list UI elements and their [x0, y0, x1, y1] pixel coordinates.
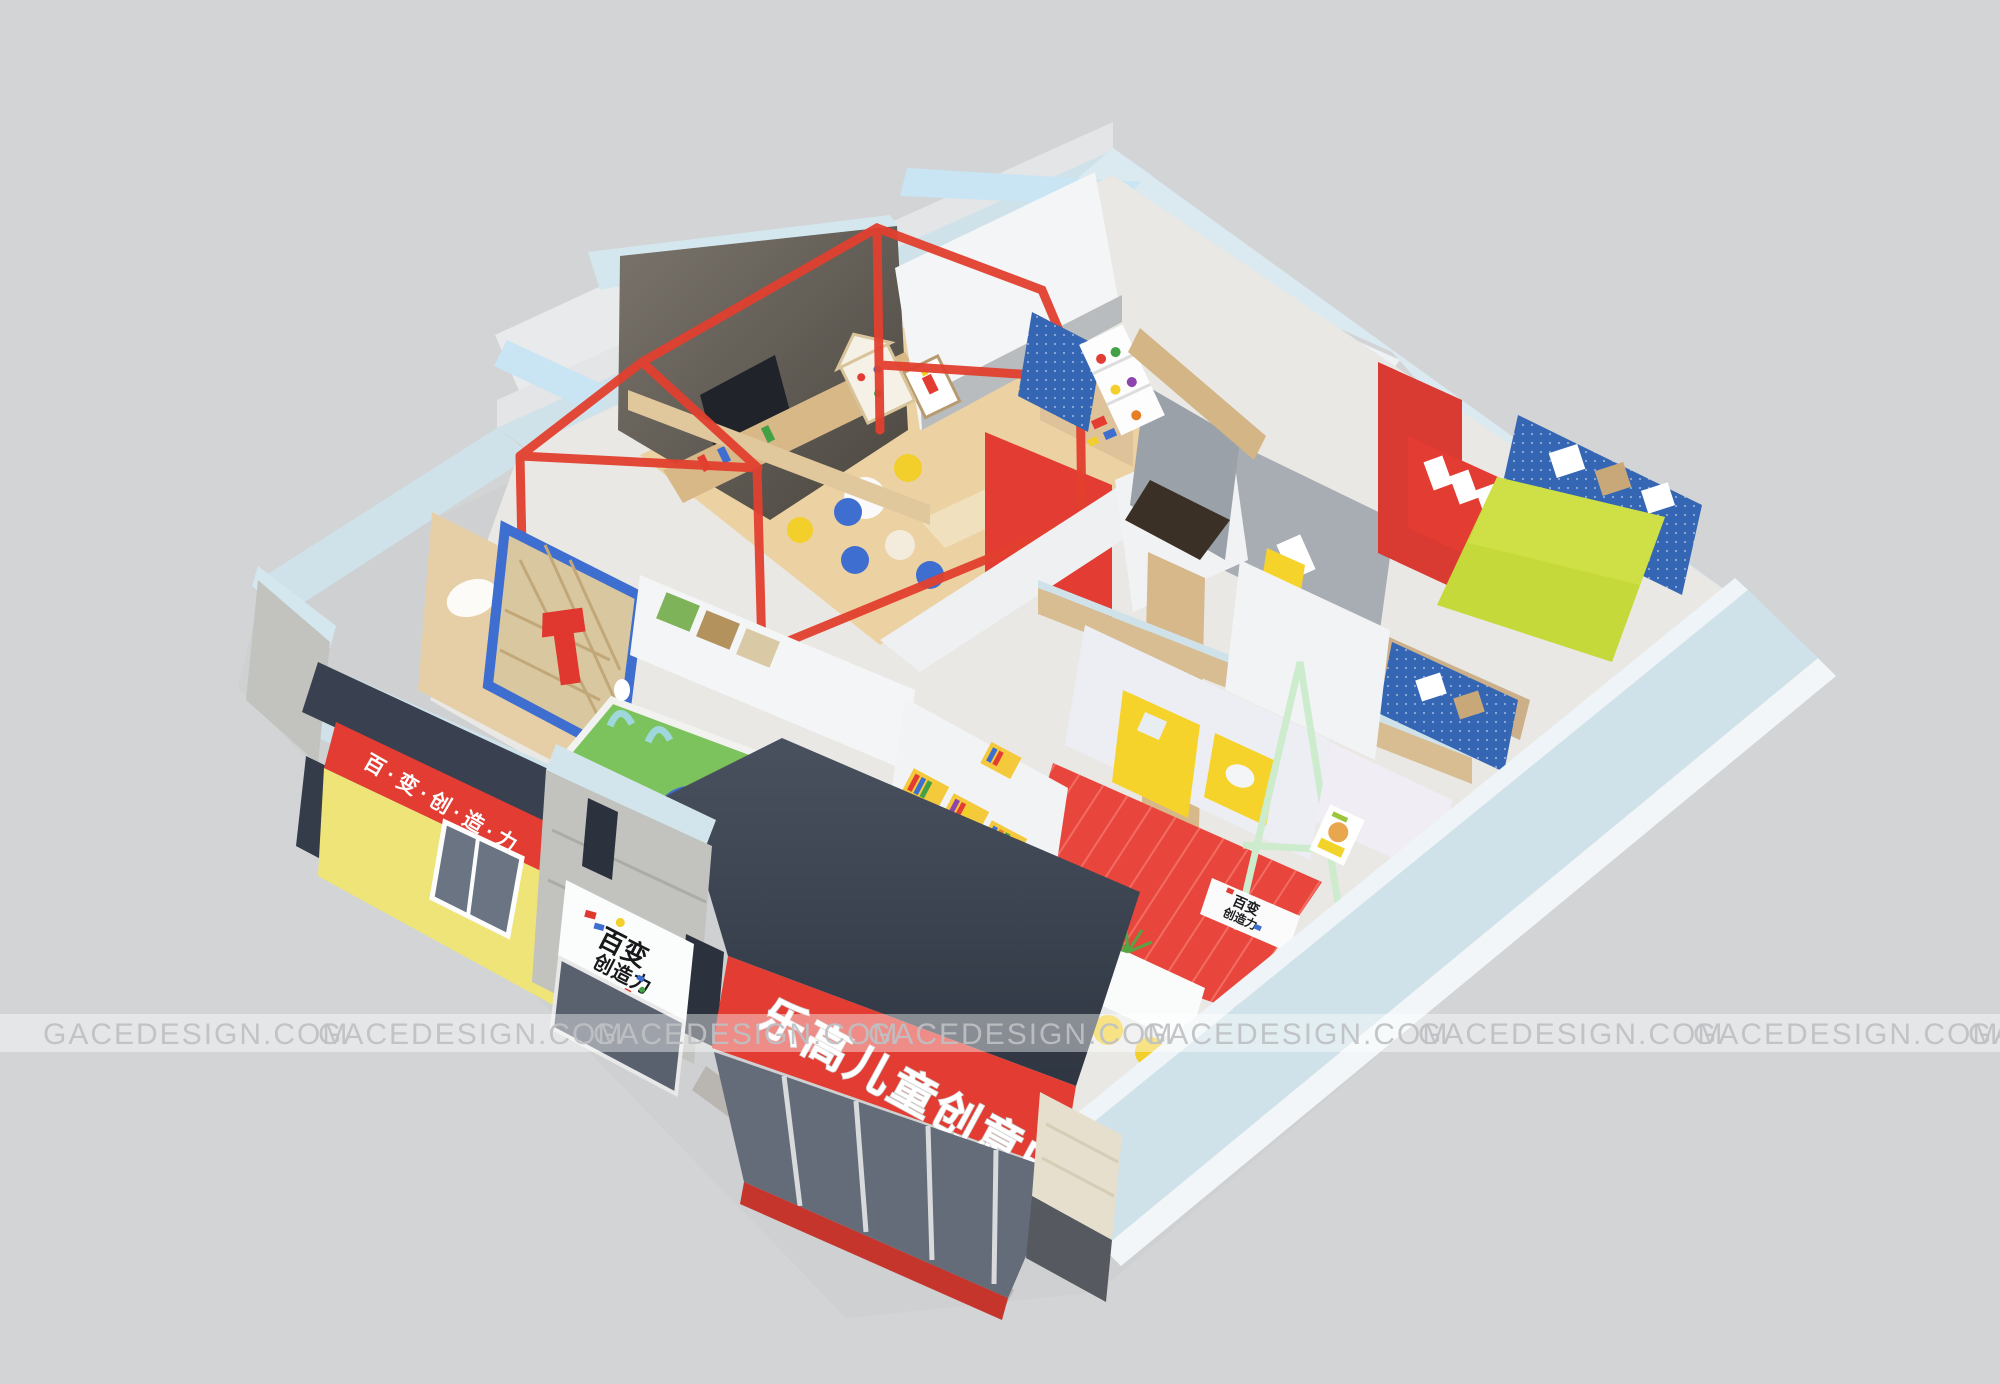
watermark-text: GACEDESIGN.COM — [1968, 1018, 2000, 1051]
stool-blue-3 — [841, 546, 869, 574]
stool-yellow-1 — [894, 454, 922, 482]
dark-bar-1 — [582, 798, 618, 880]
stool-yellow-2 — [787, 517, 813, 543]
watermark-text: GACEDESIGN.COM — [593, 1018, 899, 1051]
watermark-text: GACEDESIGN.COM — [868, 1018, 1174, 1051]
building-render: 百变 创造力 百·变·创·造·力 — [0, 0, 2000, 1384]
watermark-text: GACEDESIGN.COM — [318, 1018, 624, 1051]
watermark-text: GACEDESIGN.COM — [1418, 1018, 1724, 1051]
watermark-text: GACEDESIGN.COM — [43, 1018, 349, 1051]
goose-sculpture — [614, 679, 630, 701]
watermark-texts: GACEDESIGN.COM GACEDESIGN.COM GACEDESIGN… — [43, 1018, 2000, 1051]
watermark-text: GACEDESIGN.COM — [1143, 1018, 1449, 1051]
render-canvas: 百变 创造力 百·变·创·造·力 — [0, 0, 2000, 1384]
watermark-band: GACEDESIGN.COM GACEDESIGN.COM GACEDESIGN… — [0, 1014, 2000, 1052]
bean-chair-cream — [885, 530, 915, 560]
stool-blue-2 — [834, 498, 862, 526]
watermark-text: GACEDESIGN.COM — [1693, 1018, 1999, 1051]
